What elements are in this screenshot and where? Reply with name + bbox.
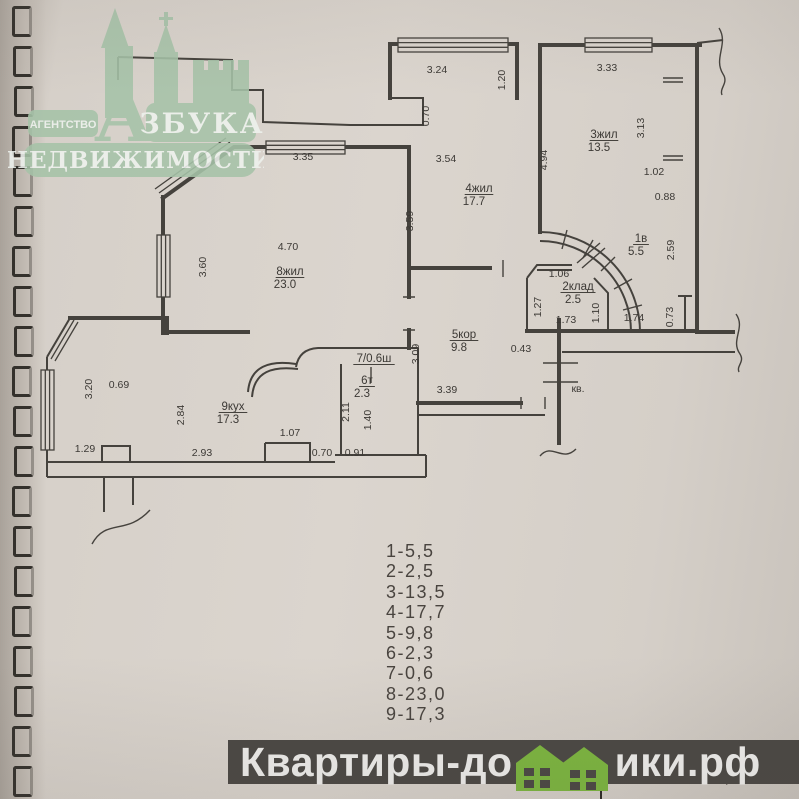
dimension-label: 2.93 [192, 447, 213, 459]
legend-item: 4-17,7 [386, 602, 446, 622]
room-area: 2.5 [565, 294, 581, 306]
legend-item: 6-2,3 [386, 643, 446, 663]
dimension-label: 1.07 [280, 427, 301, 439]
legend-item: 1-5,5 [386, 541, 446, 561]
dimension-label: 0.88 [655, 191, 676, 203]
room-area: 17.7 [463, 196, 485, 208]
room-area: 23.0 [274, 279, 296, 291]
dimension-label: 4.94 [538, 150, 550, 171]
dimension-label: 1.10 [590, 303, 602, 324]
legend-item: 3-13,5 [386, 582, 446, 602]
dimension-label: 0.70 [420, 106, 432, 127]
dimension-label: 4.70 [278, 241, 299, 253]
dimension-label: 1.73 [556, 314, 577, 326]
dimension-label: 0.70 [312, 447, 333, 459]
dimension-label: 1.40 [362, 410, 374, 431]
room-area: 5.5 [628, 246, 644, 258]
room-name: 4жил [465, 183, 492, 195]
dimension-label: 1.20 [496, 70, 508, 91]
room-area: 13.5 [588, 142, 610, 154]
dimension-label: 3.54 [436, 153, 457, 165]
logo-agency-text: АГЕНТСТВО [30, 119, 97, 131]
dimension-label: 3.39 [437, 384, 458, 396]
dimension-label: 1.74 [624, 312, 645, 324]
legend-item: 8-23,0 [386, 684, 446, 704]
logo-brand-line2: НЕДВИЖИМОСТИ [8, 147, 264, 174]
dimension-label: 0.69 [109, 379, 130, 391]
room-name: 5кор [452, 329, 476, 341]
legend-item: 2-2,5 [386, 561, 446, 581]
scanned-floor-plan-page: 3.241.203.330.703.133.353.544.941.020.88… [0, 0, 799, 799]
site-name-prefix: Квартиры-до [240, 739, 513, 786]
legend-item: 5-9,8 [386, 623, 446, 643]
room-area-legend: 1-5,52-2,53-13,54-17,75-9,86-2,37-0,68-2… [386, 541, 446, 725]
room-area: 17.3 [217, 414, 239, 426]
room-name: 2клад [562, 281, 594, 293]
dimension-label: 1.02 [644, 166, 665, 178]
dimension-label: 3.20 [83, 379, 95, 400]
room-name: 9кух [221, 401, 244, 413]
dimension-label: 3.33 [597, 62, 618, 74]
dimension-label: 1.27 [532, 297, 544, 318]
dimension-label: 1.06 [549, 268, 570, 280]
room-name: 7/0.6ш [357, 353, 392, 365]
dimension-label: 2.11 [340, 402, 352, 422]
legend-item: 7-0,6 [386, 663, 446, 683]
site-name-suffix: ики.рф [615, 739, 761, 786]
room-area: 2.3 [354, 388, 370, 400]
legend-item: 9-17,3 [386, 704, 446, 724]
dimension-label: 3.60 [197, 257, 209, 278]
dimension-label: 3.13 [635, 118, 647, 139]
logo-brand-rest: ЗБУКА [139, 107, 264, 140]
dimension-label: 0.91 [345, 447, 366, 459]
dimension-label: кв. [571, 383, 584, 395]
dimension-label: 3.24 [427, 64, 448, 76]
dimension-label: 2.59 [665, 240, 677, 261]
room-name: 1в [635, 233, 648, 245]
room-area: 9.8 [451, 342, 467, 354]
site-watermark-banner: Квартиры-до ики.рф [228, 740, 799, 784]
dimension-label: 3.35 [293, 151, 314, 163]
room-labels: 3жил13.54жил17.71в5.58жил23.02клад2.55ко… [217, 129, 649, 426]
dimension-label: 2.84 [175, 405, 187, 426]
agency-watermark-logo: АГЕНТСТВО А ЗБУКА НЕДВИЖИМОСТИ [8, 2, 264, 180]
dimension-label: 0.73 [664, 307, 676, 328]
dimension-label: 1.29 [75, 443, 96, 455]
dimension-label: 3.59 [404, 211, 416, 232]
houses-icon [514, 741, 614, 793]
room-name: 8жил [276, 266, 303, 278]
room-name: 6т [361, 375, 373, 387]
dimension-label: 0.43 [511, 343, 532, 355]
room-name: 3жил [590, 129, 617, 141]
dimension-label: 3.09 [410, 344, 422, 365]
